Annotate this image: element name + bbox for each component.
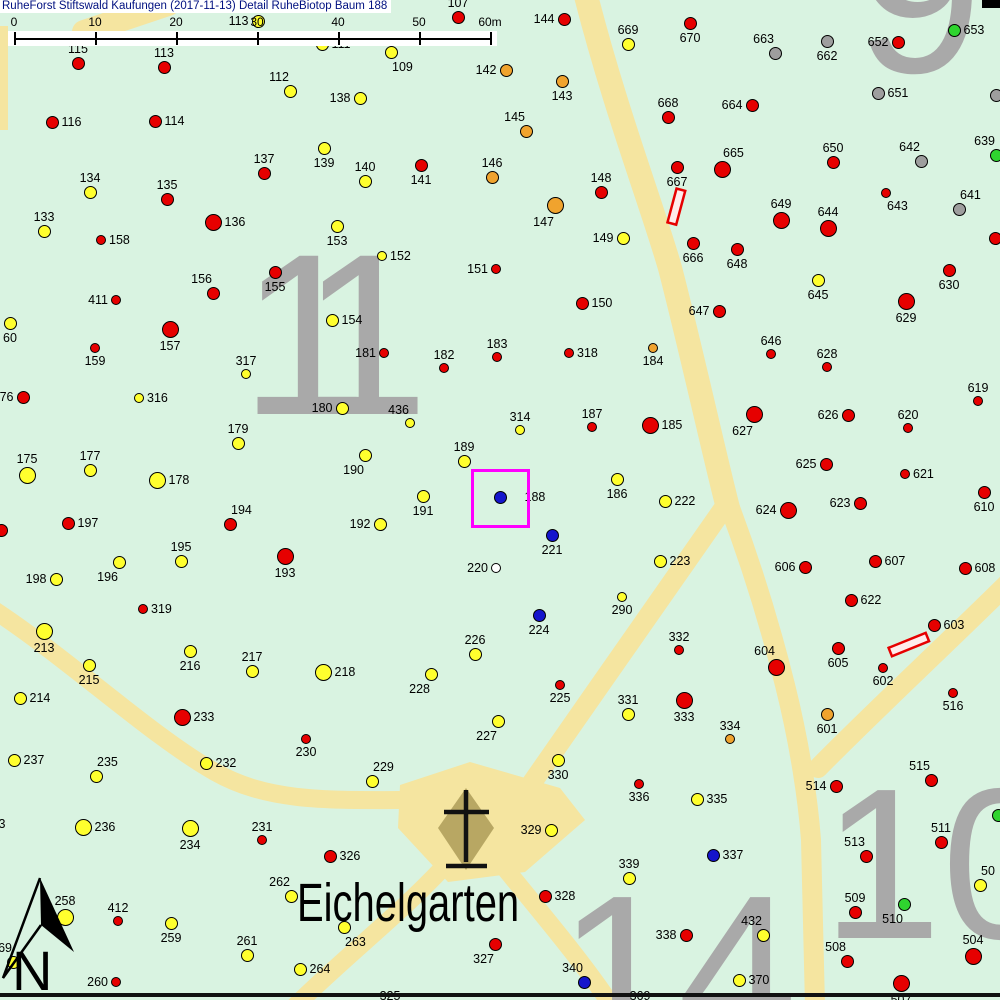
tree-marker[interactable] bbox=[379, 348, 389, 358]
tree-marker[interactable] bbox=[659, 495, 672, 508]
tree-label: 643 bbox=[887, 199, 908, 213]
tree-label: 667 bbox=[667, 175, 688, 189]
tree-marker[interactable] bbox=[84, 464, 97, 477]
tree-label: 339 bbox=[619, 857, 640, 871]
tree-label: 178 bbox=[169, 473, 190, 487]
tree-marker[interactable] bbox=[854, 497, 867, 510]
tree-marker[interactable] bbox=[315, 664, 332, 681]
tree-marker[interactable] bbox=[84, 186, 97, 199]
tree-marker[interactable] bbox=[595, 186, 608, 199]
tree-marker[interactable] bbox=[676, 692, 693, 709]
tree-label: 186 bbox=[607, 487, 628, 501]
tree-marker[interactable] bbox=[359, 449, 372, 462]
tree-marker[interactable] bbox=[161, 193, 174, 206]
tree-marker[interactable] bbox=[207, 287, 220, 300]
tree-marker[interactable] bbox=[72, 57, 85, 70]
tree-label: 622 bbox=[861, 593, 882, 607]
tree-marker[interactable] bbox=[241, 949, 254, 962]
tree-marker[interactable] bbox=[900, 469, 910, 479]
tree-label: 630 bbox=[939, 278, 960, 292]
tree-label: 137 bbox=[254, 152, 275, 166]
tree-marker[interactable] bbox=[258, 167, 271, 180]
tree-marker[interactable] bbox=[576, 297, 589, 310]
tree-marker[interactable] bbox=[827, 156, 840, 169]
tree-marker[interactable] bbox=[622, 38, 635, 51]
tree-marker[interactable] bbox=[492, 352, 502, 362]
tree-label: 217 bbox=[242, 650, 263, 664]
tree-label: 319 bbox=[151, 602, 172, 616]
tree-marker[interactable] bbox=[113, 916, 123, 926]
tree-label: 231 bbox=[252, 820, 273, 834]
tree-label: 182 bbox=[434, 348, 455, 362]
tree-label: 629 bbox=[896, 311, 917, 325]
tree-marker[interactable] bbox=[773, 212, 790, 229]
map-title: RuheForst Stiftswald Kaufungen (2017-11-… bbox=[0, 0, 391, 13]
tree-label: 335 bbox=[707, 792, 728, 806]
tree-marker[interactable] bbox=[354, 92, 367, 105]
tree-marker[interactable] bbox=[17, 391, 30, 404]
tree-marker[interactable] bbox=[821, 708, 834, 721]
tree-marker[interactable] bbox=[184, 645, 197, 658]
tree-label: 328 bbox=[555, 889, 576, 903]
tree-marker[interactable] bbox=[892, 36, 905, 49]
tree-label: 334 bbox=[720, 719, 741, 733]
tree-marker[interactable] bbox=[318, 142, 331, 155]
tree-marker[interactable] bbox=[622, 708, 635, 721]
tree-marker[interactable] bbox=[175, 555, 188, 568]
tree-marker[interactable] bbox=[948, 688, 958, 698]
tree-marker[interactable] bbox=[326, 314, 339, 327]
tree-label: 651 bbox=[888, 86, 909, 100]
tree-marker[interactable] bbox=[492, 715, 505, 728]
tree-label: 142 bbox=[476, 63, 497, 77]
tree-marker[interactable] bbox=[111, 295, 121, 305]
tree-label: 159 bbox=[85, 354, 106, 368]
tree-marker[interactable] bbox=[860, 850, 873, 863]
tree-label: 151 bbox=[467, 262, 488, 276]
tree-label: 221 bbox=[542, 543, 563, 557]
tree-label: 603 bbox=[944, 618, 965, 632]
tree-label: 177 bbox=[80, 449, 101, 463]
tree-marker[interactable] bbox=[545, 824, 558, 837]
tree-marker[interactable] bbox=[241, 369, 251, 379]
tree-label: 605 bbox=[828, 656, 849, 670]
tree-label: 644 bbox=[818, 205, 839, 219]
tree-marker[interactable] bbox=[111, 977, 121, 987]
top-right-black-fragment bbox=[982, 0, 1000, 8]
tree-marker[interactable] bbox=[564, 348, 574, 358]
red-hatch-marker bbox=[667, 189, 685, 225]
tree-label: 619 bbox=[968, 381, 989, 395]
tree-marker[interactable] bbox=[359, 175, 372, 188]
tree-label: 412 bbox=[108, 901, 129, 915]
tree-label: 193 bbox=[275, 566, 296, 580]
scale-tick bbox=[176, 32, 178, 45]
tree-marker[interactable] bbox=[935, 836, 948, 849]
tree-marker[interactable] bbox=[992, 809, 1000, 822]
tree-label: 665 bbox=[723, 146, 744, 160]
tree-marker[interactable] bbox=[515, 425, 525, 435]
tree-marker[interactable] bbox=[500, 64, 513, 77]
tree-marker[interactable] bbox=[780, 502, 797, 519]
tree-marker[interactable] bbox=[520, 125, 533, 138]
red-hatch-marker bbox=[889, 633, 929, 656]
tree-label: 338 bbox=[656, 928, 677, 942]
tree-marker[interactable] bbox=[366, 775, 379, 788]
tree-marker[interactable] bbox=[617, 232, 630, 245]
tree-marker[interactable] bbox=[486, 171, 499, 184]
tree-marker[interactable] bbox=[36, 623, 53, 640]
tree-label: 264 bbox=[310, 962, 331, 976]
tree-marker[interactable] bbox=[578, 976, 591, 989]
tree-marker[interactable] bbox=[733, 974, 746, 987]
tree-marker[interactable] bbox=[165, 917, 178, 930]
tree-label: 370 bbox=[749, 973, 770, 987]
tree-marker[interactable] bbox=[452, 11, 465, 24]
tree-label: 230 bbox=[296, 745, 317, 759]
tree-marker[interactable] bbox=[680, 929, 693, 942]
tree-marker[interactable] bbox=[989, 232, 1000, 245]
tree-marker[interactable] bbox=[634, 779, 644, 789]
tree-marker[interactable] bbox=[903, 423, 913, 433]
scale-number: 20 bbox=[169, 15, 182, 29]
tree-marker[interactable] bbox=[547, 197, 564, 214]
tree-marker[interactable] bbox=[138, 604, 148, 614]
tree-label: 144 bbox=[534, 12, 555, 26]
tree-marker[interactable] bbox=[687, 237, 700, 250]
tree-marker[interactable] bbox=[134, 393, 144, 403]
tree-label: 229 bbox=[373, 760, 394, 774]
tree-marker[interactable] bbox=[898, 293, 915, 310]
tree-label: 647 bbox=[689, 304, 710, 318]
tree-marker[interactable] bbox=[841, 955, 854, 968]
scale-number: 50 bbox=[412, 15, 425, 29]
tree-marker[interactable] bbox=[662, 111, 675, 124]
tree-marker[interactable] bbox=[820, 220, 837, 237]
tree-label: 143 bbox=[552, 89, 573, 103]
tree-marker[interactable] bbox=[246, 665, 259, 678]
tree-marker[interactable] bbox=[285, 890, 298, 903]
tree-marker[interactable] bbox=[0, 524, 8, 537]
tree-label: 112 bbox=[269, 70, 289, 84]
tree-label: 190 bbox=[343, 463, 364, 477]
tree-label: 263 bbox=[345, 935, 366, 949]
tree-marker[interactable] bbox=[928, 619, 941, 632]
tree-label: 646 bbox=[761, 334, 782, 348]
tree-marker[interactable] bbox=[953, 203, 966, 216]
north-label: N bbox=[12, 939, 52, 1000]
tree-label: 664 bbox=[722, 98, 743, 112]
chapel-symbol bbox=[438, 788, 494, 870]
tree-label: 327 bbox=[473, 952, 494, 966]
tree-marker[interactable] bbox=[182, 820, 199, 837]
tree-marker[interactable] bbox=[8, 754, 21, 767]
tree-marker[interactable] bbox=[974, 879, 987, 892]
tree-marker[interactable] bbox=[469, 648, 482, 661]
tree-marker[interactable] bbox=[821, 35, 834, 48]
tree-label: 218 bbox=[335, 665, 356, 679]
tree-marker[interactable] bbox=[878, 663, 888, 673]
tree-label: 516 bbox=[943, 699, 964, 713]
tree-label: 227 bbox=[476, 729, 497, 743]
map-canvas[interactable]: 1191014 Eichelgarten 1071131111091151131… bbox=[0, 0, 1000, 1000]
tree-label: 641 bbox=[960, 188, 981, 202]
tree-marker[interactable] bbox=[707, 849, 720, 862]
tree-label: 183 bbox=[487, 337, 508, 351]
tree-label: 187 bbox=[582, 407, 603, 421]
tree-marker[interactable] bbox=[830, 780, 843, 793]
tree-marker[interactable] bbox=[915, 155, 928, 168]
tree-label: 652 bbox=[868, 35, 889, 49]
tree-label: 653 bbox=[964, 23, 985, 37]
tree-label: 236 bbox=[95, 820, 116, 834]
tree-label: 226 bbox=[465, 633, 486, 647]
tree-marker[interactable] bbox=[746, 406, 763, 423]
tree-label: 604 bbox=[754, 644, 775, 658]
tree-marker[interactable] bbox=[555, 680, 565, 690]
tree-marker[interactable] bbox=[845, 594, 858, 607]
tree-marker[interactable] bbox=[713, 305, 726, 318]
tree-label: 141 bbox=[411, 173, 432, 187]
tree-marker[interactable] bbox=[820, 458, 833, 471]
tree-label: 181 bbox=[355, 346, 376, 360]
tree-marker[interactable] bbox=[301, 734, 311, 744]
tree-label: 509 bbox=[845, 891, 866, 905]
tree-marker[interactable] bbox=[158, 61, 171, 74]
tree-marker[interactable] bbox=[925, 774, 938, 787]
tree-label: 152 bbox=[390, 249, 411, 263]
tree-marker[interactable] bbox=[948, 24, 961, 37]
tree-marker[interactable] bbox=[75, 819, 92, 836]
tree-label: 610 bbox=[974, 500, 995, 514]
tree-marker[interactable] bbox=[83, 659, 96, 672]
tree-label: 180 bbox=[312, 401, 333, 415]
tree-marker[interactable] bbox=[769, 47, 782, 60]
tree-label: 109 bbox=[392, 60, 413, 74]
tree-label: 331 bbox=[618, 693, 639, 707]
tree-marker[interactable] bbox=[331, 220, 344, 233]
tree-marker[interactable] bbox=[205, 214, 222, 231]
tree-label: 107 bbox=[448, 0, 469, 10]
tree-label: 194 bbox=[231, 503, 252, 517]
tree-marker[interactable] bbox=[425, 668, 438, 681]
tree-marker[interactable] bbox=[113, 556, 126, 569]
tree-marker[interactable] bbox=[417, 490, 430, 503]
tree-marker[interactable] bbox=[611, 473, 624, 486]
tree-marker[interactable] bbox=[671, 161, 684, 174]
tree-label: 666 bbox=[683, 251, 704, 265]
tree-marker[interactable] bbox=[617, 592, 627, 602]
tree-marker[interactable] bbox=[62, 517, 75, 530]
tree-marker[interactable] bbox=[587, 422, 597, 432]
north-arrow: N bbox=[0, 868, 100, 1000]
tree-marker[interactable] bbox=[746, 99, 759, 112]
tree-label: 233 bbox=[194, 710, 215, 724]
tree-marker[interactable] bbox=[842, 409, 855, 422]
tree-marker[interactable] bbox=[439, 363, 449, 373]
tree-label: 602 bbox=[873, 674, 894, 688]
tree-marker[interactable] bbox=[257, 835, 267, 845]
tree-marker[interactable] bbox=[714, 161, 731, 178]
tree-marker[interactable] bbox=[405, 418, 415, 428]
tree-marker[interactable] bbox=[725, 734, 735, 744]
tree-label: 213 bbox=[34, 641, 55, 655]
scale-tick bbox=[257, 32, 259, 45]
tree-marker[interactable] bbox=[832, 642, 845, 655]
tree-label: 224 bbox=[529, 623, 550, 637]
tree-label: 639 bbox=[974, 134, 995, 148]
tree-label: 148 bbox=[591, 171, 612, 185]
tree-label: 436 bbox=[388, 403, 409, 417]
tree-marker[interactable] bbox=[90, 770, 103, 783]
tree-marker[interactable] bbox=[174, 709, 191, 726]
tree-marker[interactable] bbox=[822, 362, 832, 372]
tree-marker[interactable] bbox=[269, 266, 282, 279]
tree-label: 663 bbox=[753, 32, 774, 46]
tree-label: 195 bbox=[171, 540, 192, 554]
tree-label: 607 bbox=[885, 554, 906, 568]
tree-marker[interactable] bbox=[338, 921, 351, 934]
tree-marker[interactable] bbox=[385, 46, 398, 59]
tree-label: 134 bbox=[80, 171, 101, 185]
tree-label: 198 bbox=[26, 572, 47, 586]
tree-marker[interactable] bbox=[533, 609, 546, 622]
tree-marker[interactable] bbox=[336, 402, 349, 415]
tree-marker[interactable] bbox=[284, 85, 297, 98]
tree-label: 261 bbox=[237, 934, 258, 948]
tree-marker[interactable] bbox=[415, 159, 428, 172]
tree-label: 156 bbox=[191, 272, 212, 286]
tree-label: 314 bbox=[510, 410, 531, 424]
scale-tick bbox=[338, 32, 340, 45]
tree-label: 317 bbox=[236, 354, 257, 368]
tree-marker[interactable] bbox=[14, 692, 27, 705]
tree-label: 601 bbox=[817, 722, 838, 736]
tree-label: 608 bbox=[975, 561, 996, 575]
tree-marker[interactable] bbox=[96, 235, 106, 245]
tree-marker[interactable] bbox=[491, 563, 501, 573]
tree-marker[interactable] bbox=[731, 243, 744, 256]
scale-tick bbox=[14, 32, 16, 45]
tree-marker[interactable] bbox=[766, 349, 776, 359]
tree-label: 216 bbox=[180, 659, 201, 673]
tree-marker[interactable] bbox=[558, 13, 571, 26]
tree-marker[interactable] bbox=[849, 906, 862, 919]
scale-number: 10 bbox=[88, 15, 101, 29]
tree-marker[interactable] bbox=[973, 396, 983, 406]
tree-marker[interactable] bbox=[19, 467, 36, 484]
tree-marker[interactable] bbox=[978, 486, 991, 499]
tree-marker[interactable] bbox=[642, 417, 659, 434]
tree-marker[interactable] bbox=[224, 518, 237, 531]
tree-marker[interactable] bbox=[458, 455, 471, 468]
tree-label: 147 bbox=[533, 215, 554, 229]
tree-marker[interactable] bbox=[489, 938, 502, 951]
tree-label: 192 bbox=[350, 517, 371, 531]
tree-marker[interactable] bbox=[872, 87, 885, 100]
tree-marker[interactable] bbox=[374, 518, 387, 531]
scale-number: 30 bbox=[250, 15, 263, 29]
tree-marker[interactable] bbox=[684, 17, 697, 30]
tree-label: 624 bbox=[756, 503, 777, 517]
tree-marker[interactable] bbox=[691, 793, 704, 806]
tree-marker[interactable] bbox=[648, 343, 658, 353]
tree-label: 329 bbox=[521, 823, 542, 837]
scale-tick bbox=[419, 32, 421, 45]
tree-marker[interactable] bbox=[491, 264, 501, 274]
scale-number: 60m bbox=[478, 15, 501, 29]
tree-marker[interactable] bbox=[46, 116, 59, 129]
tree-label: 228 bbox=[409, 682, 430, 696]
tree-marker[interactable] bbox=[893, 975, 910, 992]
tree-label: 326 bbox=[340, 849, 361, 863]
tree-marker[interactable] bbox=[943, 264, 956, 277]
scale-tick bbox=[490, 32, 492, 45]
tree-label: 189 bbox=[454, 440, 475, 454]
highlight-square bbox=[471, 469, 530, 528]
tree-label: 316 bbox=[147, 391, 168, 405]
tree-label: 146 bbox=[482, 156, 503, 170]
tree-marker[interactable] bbox=[90, 343, 100, 353]
tree-marker[interactable] bbox=[294, 963, 307, 976]
tree-label: 50 bbox=[981, 864, 995, 878]
tree-marker[interactable] bbox=[654, 555, 667, 568]
tree-label: 222 bbox=[675, 494, 696, 508]
tree-label: 290 bbox=[612, 603, 633, 617]
tree-marker[interactable] bbox=[674, 645, 684, 655]
tree-marker[interactable] bbox=[200, 757, 213, 770]
tree-marker[interactable] bbox=[898, 898, 911, 911]
tree-marker[interactable] bbox=[812, 274, 825, 287]
tree-label: 411 bbox=[88, 293, 108, 307]
tree-marker[interactable] bbox=[869, 555, 882, 568]
tree-label: 214 bbox=[30, 691, 51, 705]
tree-marker[interactable] bbox=[552, 754, 565, 767]
tree-label: 215 bbox=[79, 673, 100, 687]
tree-marker[interactable] bbox=[990, 89, 1000, 102]
tree-marker[interactable] bbox=[757, 929, 770, 942]
tree-label: 196 bbox=[97, 570, 118, 584]
tree-marker[interactable] bbox=[768, 659, 785, 676]
tree-marker[interactable] bbox=[149, 115, 162, 128]
place-label: Eichelgarten bbox=[297, 872, 519, 934]
tree-marker[interactable] bbox=[162, 321, 179, 338]
tree-label: 626 bbox=[818, 408, 839, 422]
tree-marker[interactable] bbox=[324, 850, 337, 863]
tree-marker[interactable] bbox=[4, 317, 17, 330]
tree-marker[interactable] bbox=[623, 872, 636, 885]
tree-marker[interactable] bbox=[50, 573, 63, 586]
tree-marker[interactable] bbox=[539, 890, 552, 903]
bottom-border-line bbox=[0, 993, 1000, 997]
tree-marker[interactable] bbox=[377, 251, 387, 261]
tree-marker[interactable] bbox=[881, 188, 891, 198]
tree-label: 139 bbox=[314, 156, 335, 170]
tree-label: 504 bbox=[963, 933, 984, 947]
tree-marker[interactable] bbox=[990, 149, 1000, 162]
tree-marker[interactable] bbox=[959, 562, 972, 575]
tree-marker[interactable] bbox=[277, 548, 294, 565]
tree-marker[interactable] bbox=[556, 75, 569, 88]
tree-marker[interactable] bbox=[232, 437, 245, 450]
tree-marker[interactable] bbox=[799, 561, 812, 574]
tree-label: 232 bbox=[216, 756, 237, 770]
tree-marker[interactable] bbox=[546, 529, 559, 542]
tree-marker[interactable] bbox=[38, 225, 51, 238]
tree-marker[interactable] bbox=[149, 472, 166, 489]
tree-marker[interactable] bbox=[965, 948, 982, 965]
tree-label: 670 bbox=[680, 31, 701, 45]
